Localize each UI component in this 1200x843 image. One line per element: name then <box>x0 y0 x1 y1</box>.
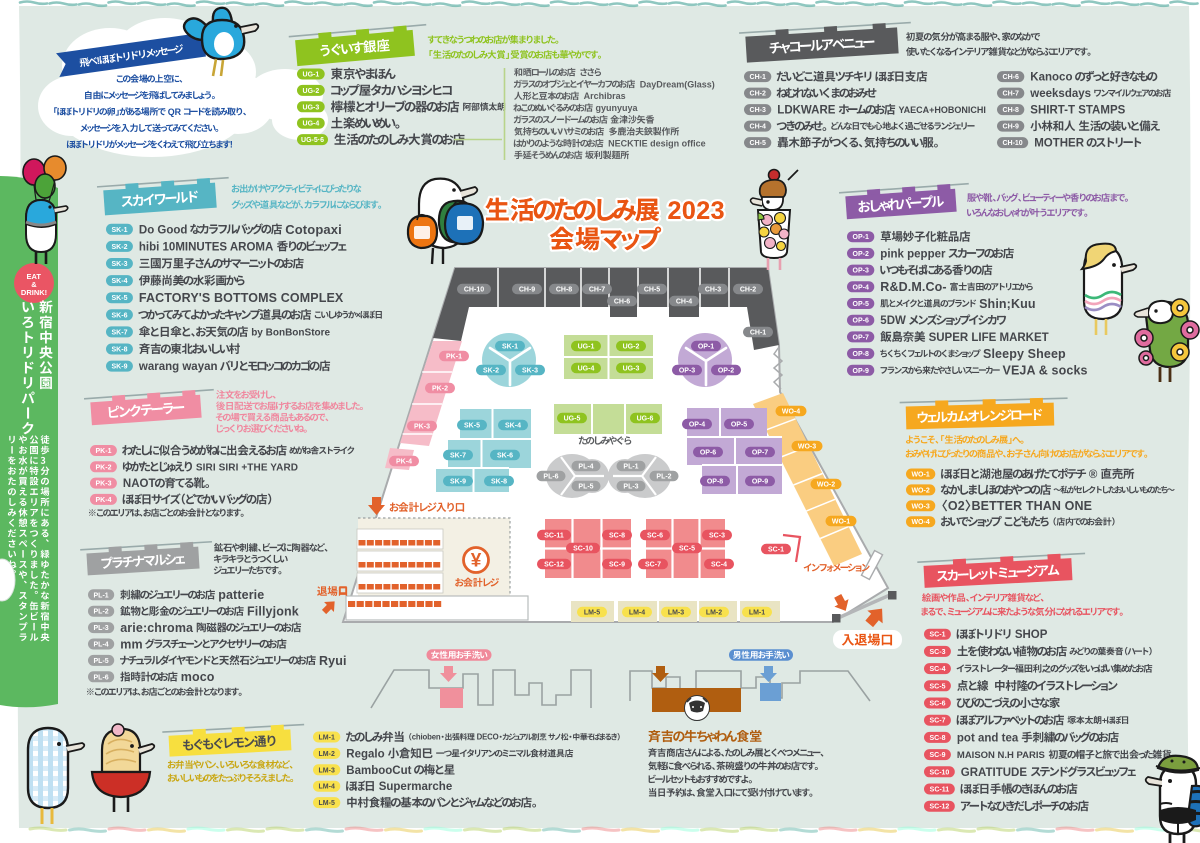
svg-text:+: + <box>1102 715 1107 725</box>
svg-text:SC-4: SC-4 <box>930 666 946 673</box>
svg-text:UG-6: UG-6 <box>637 416 654 423</box>
svg-text:Shin;Kuu: Shin;Kuu <box>979 297 1036 311</box>
svg-text:GRATITUDE: GRATITUDE <box>961 767 1028 779</box>
svg-text:OP-2: OP-2 <box>718 368 734 375</box>
svg-text:PK-4: PK-4 <box>396 459 412 466</box>
svg-text:CH-7: CH-7 <box>1003 91 1019 98</box>
svg-text:LM-5: LM-5 <box>319 800 335 807</box>
svg-text:BambooCut: BambooCut <box>346 765 411 777</box>
svg-text:CH-1: CH-1 <box>750 74 766 81</box>
svg-text:CH-10: CH-10 <box>464 287 484 294</box>
svg-text:PL-2: PL-2 <box>656 474 671 481</box>
svg-text:OP-8: OP-8 <box>853 351 869 358</box>
svg-text:SC-12: SC-12 <box>929 804 949 811</box>
svg-text:Supermarche: Supermarche <box>379 781 453 793</box>
svg-text:by BonBonStore: by BonBonStore <box>251 327 330 338</box>
svg-text:UG-5·6: UG-5·6 <box>301 137 324 144</box>
svg-text:warang wayan: warang wayan <box>138 361 218 373</box>
svg-text:SK-5: SK-5 <box>112 295 128 302</box>
svg-text:SC-12: SC-12 <box>544 562 564 569</box>
svg-text:OP-5: OP-5 <box>853 301 869 308</box>
svg-text:O2: O2 <box>948 499 965 513</box>
svg-text:CH-9: CH-9 <box>519 287 535 294</box>
svg-text:SK-1: SK-1 <box>112 227 128 234</box>
svg-text:OP-1: OP-1 <box>853 234 869 241</box>
svg-text:LM-1: LM-1 <box>319 735 335 742</box>
svg-text:MOTHER: MOTHER <box>1034 138 1085 150</box>
svg-text:SC-3: SC-3 <box>930 649 946 656</box>
svg-text:SC-5: SC-5 <box>679 546 695 553</box>
svg-text:WO-3: WO-3 <box>798 444 816 451</box>
svg-text:LDKWARE: LDKWARE <box>777 105 835 117</box>
svg-text:CH-4: CH-4 <box>676 299 692 306</box>
svg-text:SK-2: SK-2 <box>112 244 128 251</box>
svg-text:!: ! <box>230 140 233 150</box>
svg-text:®: ® <box>1089 469 1098 481</box>
svg-text:CH-1: CH-1 <box>750 330 766 337</box>
svg-text:Regalo: Regalo <box>346 748 384 760</box>
svg-text:OP-3: OP-3 <box>853 268 869 275</box>
svg-text:CH-10: CH-10 <box>1002 140 1022 147</box>
svg-text:MAISON N.H PARIS: MAISON N.H PARIS <box>957 750 1045 761</box>
svg-text:YAECA+HOBONICHI: YAECA+HOBONICHI <box>899 105 986 115</box>
svg-text:SC-11: SC-11 <box>930 787 950 794</box>
svg-text:SK-1: SK-1 <box>502 344 518 351</box>
svg-text:PL-2: PL-2 <box>94 609 109 616</box>
svg-text:SK-3: SK-3 <box>112 261 128 268</box>
svg-text:mm: mm <box>120 637 142 651</box>
svg-text:hibi 10MINUTES AROMA: hibi 10MINUTES AROMA <box>139 241 273 253</box>
svg-text:PK-3: PK-3 <box>414 424 430 431</box>
svg-text:PK-1: PK-1 <box>96 448 112 455</box>
svg-text:SC-1: SC-1 <box>930 632 946 639</box>
svg-text:CH-7: CH-7 <box>589 287 605 294</box>
svg-text:OP-6: OP-6 <box>700 450 716 457</box>
svg-text:PL-6: PL-6 <box>94 674 109 681</box>
svg-text:PL-4: PL-4 <box>578 464 593 471</box>
svg-text:Cotopaxi: Cotopaxi <box>285 222 342 237</box>
svg-text:SK-6: SK-6 <box>112 312 128 319</box>
svg-text:Kanoco: Kanoco <box>1030 72 1072 84</box>
svg-text:SC-9: SC-9 <box>930 752 946 759</box>
svg-text:Archibras: Archibras <box>584 91 626 101</box>
svg-text:UG-2: UG-2 <box>303 88 320 95</box>
svg-text:WO-2: WO-2 <box>911 487 929 494</box>
svg-text:SK-4: SK-4 <box>112 278 128 285</box>
svg-text:WO-1: WO-1 <box>832 519 850 526</box>
svg-text:pot and tea: pot and tea <box>957 732 1019 744</box>
svg-text:SC-6: SC-6 <box>647 533 663 540</box>
svg-text:OP-3: OP-3 <box>679 368 695 375</box>
svg-text:DRINK!: DRINK! <box>21 288 47 297</box>
svg-text:SC-8: SC-8 <box>609 533 625 540</box>
svg-text:UG-4: UG-4 <box>578 366 595 373</box>
svg-text:SC-5: SC-5 <box>930 683 946 690</box>
svg-text:weeksdays: weeksdays <box>1029 88 1091 100</box>
svg-text:SUPER LIFE MARKET: SUPER LIFE MARKET <box>929 332 1049 344</box>
svg-text:Do Good: Do Good <box>139 224 188 236</box>
svg-text:VEJA & socks: VEJA & socks <box>1003 364 1088 378</box>
svg-text:WO-4: WO-4 <box>911 519 929 526</box>
svg-text:BETTER THAN ONE: BETTER THAN ONE <box>971 499 1092 513</box>
svg-text:UG-1: UG-1 <box>303 72 320 79</box>
svg-text:gyunyuya: gyunyuya <box>596 103 639 113</box>
svg-text:SC-7: SC-7 <box>645 562 661 569</box>
svg-text:LM-3: LM-3 <box>319 767 335 774</box>
svg-text:patterie: patterie <box>218 588 264 602</box>
svg-text:PL-4: PL-4 <box>94 642 109 649</box>
svg-text:CH-3: CH-3 <box>705 287 721 294</box>
svg-text:SK-4: SK-4 <box>505 423 521 430</box>
svg-text:SHOP: SHOP <box>1015 629 1048 641</box>
svg-text:UG-1: UG-1 <box>578 344 595 351</box>
svg-text:OP-9: OP-9 <box>752 479 768 486</box>
svg-text:LM-2: LM-2 <box>706 610 722 617</box>
svg-text:UG-3: UG-3 <box>303 104 320 111</box>
svg-text:OP-1: OP-1 <box>698 344 714 351</box>
svg-text:OP-7: OP-7 <box>752 450 768 457</box>
svg-text:UG-3: UG-3 <box>623 366 640 373</box>
svg-text:CH-6: CH-6 <box>1003 74 1019 81</box>
svg-text:Sleepy Sheep: Sleepy Sheep <box>983 347 1066 361</box>
svg-text:SC-6: SC-6 <box>930 701 946 708</box>
svg-text:5DW: 5DW <box>880 315 906 327</box>
svg-text:OP-8: OP-8 <box>707 479 723 486</box>
svg-text:SC-3: SC-3 <box>709 533 725 540</box>
svg-text:WO-2: WO-2 <box>817 482 835 489</box>
svg-text:LM-4: LM-4 <box>319 784 335 791</box>
svg-text:CH-2: CH-2 <box>750 91 766 98</box>
svg-text:FACTORY'S BOTTOMS COMPLEX: FACTORY'S BOTTOMS COMPLEX <box>139 291 344 305</box>
svg-text:DayDream(Glass): DayDream(Glass) <box>640 79 715 89</box>
svg-text:SC-7: SC-7 <box>930 718 946 725</box>
svg-text:CH-5: CH-5 <box>750 140 766 147</box>
svg-text:SK-8: SK-8 <box>112 347 128 354</box>
svg-text:SC-11: SC-11 <box>544 533 564 540</box>
svg-text:CH-5: CH-5 <box>644 287 660 294</box>
svg-text:&: & <box>31 280 37 289</box>
svg-text:UG-5: UG-5 <box>564 416 581 423</box>
svg-text:PK-3: PK-3 <box>96 481 112 488</box>
svg-text:CH-4: CH-4 <box>750 124 766 131</box>
svg-text:OP-2: OP-2 <box>853 251 869 258</box>
svg-text:arie:chroma: arie:chroma <box>120 621 194 635</box>
svg-text:LM-5: LM-5 <box>584 610 600 617</box>
svg-text:LM-3: LM-3 <box>668 610 684 617</box>
svg-text:Ryui: Ryui <box>319 654 347 668</box>
svg-text:PL-5: PL-5 <box>94 658 109 665</box>
svg-text:SC-1: SC-1 <box>768 547 784 554</box>
svg-text:WO-4: WO-4 <box>782 409 800 416</box>
svg-text:CH-8: CH-8 <box>1003 107 1019 114</box>
svg-text:PL-1: PL-1 <box>94 592 109 599</box>
svg-text:SC-10: SC-10 <box>573 546 593 553</box>
svg-text:OP-6: OP-6 <box>853 318 869 325</box>
svg-text:chioben: chioben <box>412 733 441 742</box>
svg-text:×: × <box>356 310 361 320</box>
svg-text:LM-4: LM-4 <box>629 610 645 617</box>
svg-text:CH-8: CH-8 <box>556 287 572 294</box>
svg-text:PK-2: PK-2 <box>432 386 448 393</box>
svg-text:PL-1: PL-1 <box>623 464 638 471</box>
svg-text:CH-6: CH-6 <box>614 299 630 306</box>
svg-text:SK-9: SK-9 <box>112 364 128 371</box>
svg-text:2023: 2023 <box>667 197 725 225</box>
svg-text:OP-4: OP-4 <box>853 284 869 291</box>
svg-text:PL-3: PL-3 <box>94 625 109 632</box>
svg-text:UG-4: UG-4 <box>303 121 320 128</box>
svg-text:SC-8: SC-8 <box>930 735 946 742</box>
svg-text:WO-1: WO-1 <box>911 472 929 479</box>
svg-text:PL-3: PL-3 <box>623 484 638 491</box>
svg-text:SK-7: SK-7 <box>450 453 466 460</box>
svg-text:pink pepper: pink pepper <box>880 248 946 260</box>
svg-text:EAT: EAT <box>27 272 42 281</box>
svg-text:PL-5: PL-5 <box>578 484 593 491</box>
svg-text:DECO: DECO <box>477 733 499 742</box>
svg-text:SK-2: SK-2 <box>483 368 499 375</box>
svg-text:NECKTIE design office: NECKTIE design office <box>608 139 706 149</box>
svg-text:OP-4: OP-4 <box>689 422 705 429</box>
svg-text:UG-2: UG-2 <box>623 344 640 351</box>
svg-text:NAOT: NAOT <box>123 478 156 490</box>
svg-text:QR: QR <box>168 107 182 117</box>
svg-text:OP-9: OP-9 <box>853 368 869 375</box>
svg-text:OP-7: OP-7 <box>853 334 869 341</box>
svg-text:CH-2: CH-2 <box>740 287 756 294</box>
svg-text:SK-9: SK-9 <box>450 479 466 486</box>
svg-text:R&D.M.Co-: R&D.M.Co- <box>880 280 946 294</box>
svg-text:WO-3: WO-3 <box>911 503 929 510</box>
svg-text:PK-4: PK-4 <box>96 497 112 504</box>
svg-text:SIRI SIRI +THE YARD: SIRI SIRI +THE YARD <box>196 462 298 473</box>
svg-text:CH-9: CH-9 <box>1003 124 1019 131</box>
svg-text:SC-4: SC-4 <box>711 562 727 569</box>
svg-text:Fillyjonk: Fillyjonk <box>247 605 299 619</box>
svg-text:¥: ¥ <box>471 551 482 572</box>
svg-text:SK-3: SK-3 <box>522 368 538 375</box>
svg-text:OP-5: OP-5 <box>731 422 747 429</box>
svg-text:SK-7: SK-7 <box>112 329 128 336</box>
svg-text:PK-1: PK-1 <box>446 354 462 361</box>
svg-text:PL-6: PL-6 <box>543 474 558 481</box>
svg-text:CH-3: CH-3 <box>750 107 766 114</box>
svg-text:SHIRT-T STAMPS: SHIRT-T STAMPS <box>1030 105 1125 117</box>
svg-text:LM-2: LM-2 <box>319 751 335 758</box>
svg-text:PK-2: PK-2 <box>96 464 112 471</box>
svg-text:moco: moco <box>181 670 215 684</box>
svg-text:SC-10: SC-10 <box>929 769 949 776</box>
svg-text:LM-1: LM-1 <box>749 610 765 617</box>
svg-text:SK-8: SK-8 <box>491 479 507 486</box>
svg-text:SC-9: SC-9 <box>609 562 625 569</box>
svg-text:SK-5: SK-5 <box>464 423 480 430</box>
svg-text:SK-6: SK-6 <box>497 453 513 460</box>
